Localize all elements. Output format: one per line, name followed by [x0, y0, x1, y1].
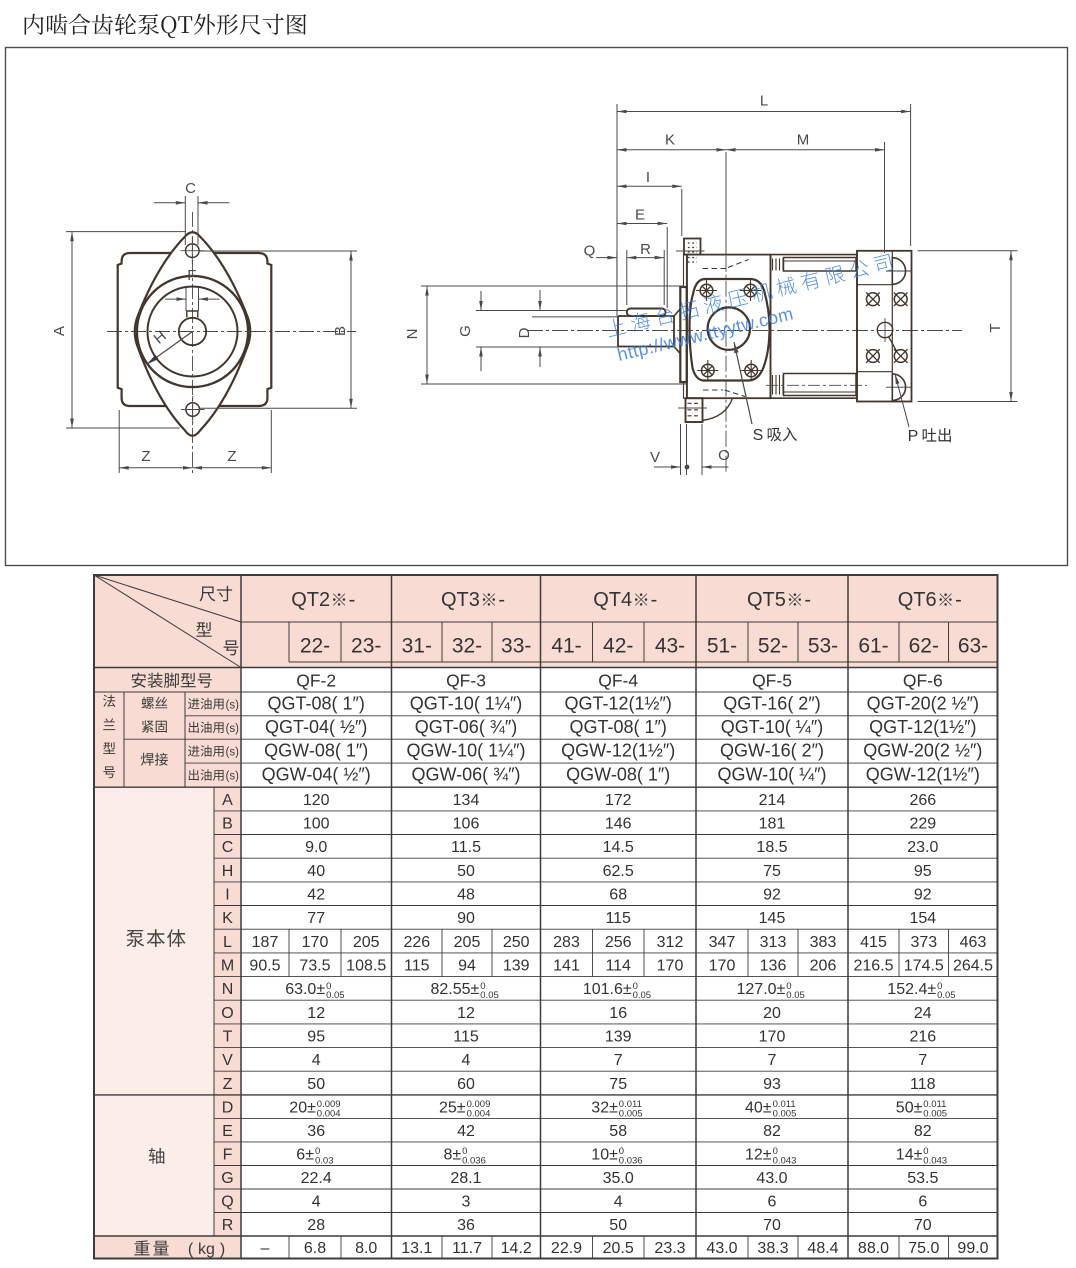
svg-text:95: 95 — [914, 863, 932, 880]
svg-text:50±: 50± — [896, 1100, 923, 1117]
svg-text:0.05: 0.05 — [633, 990, 652, 1001]
svg-text:6: 6 — [768, 1194, 777, 1211]
svg-text:62-: 62- — [909, 635, 939, 658]
svg-text:Z: Z — [223, 1076, 233, 1093]
svg-text:QGW-12(1½″): QGW-12(1½″) — [866, 765, 980, 785]
svg-text:73.5: 73.5 — [299, 958, 330, 975]
svg-text:C: C — [222, 839, 234, 856]
svg-text:0.005: 0.005 — [773, 1109, 797, 1120]
svg-text:206: 206 — [810, 958, 837, 975]
svg-text:M: M — [221, 958, 234, 975]
svg-text:115: 115 — [453, 1029, 479, 1046]
svg-text:53.5: 53.5 — [907, 1170, 938, 1187]
svg-text:QF-3: QF-3 — [446, 671, 486, 691]
svg-text:20.5: 20.5 — [603, 1240, 634, 1257]
svg-text:50: 50 — [307, 1076, 325, 1093]
svg-text:QF-6: QF-6 — [903, 671, 943, 691]
svg-text:6.8: 6.8 — [304, 1240, 326, 1257]
svg-text:170: 170 — [759, 1029, 786, 1046]
svg-text:22-: 22- — [300, 635, 330, 658]
svg-text:60: 60 — [457, 1076, 475, 1093]
svg-text:170: 170 — [302, 934, 329, 951]
svg-text:40: 40 — [307, 863, 325, 880]
svg-text:QGT-08( 1″): QGT-08( 1″) — [569, 717, 666, 737]
svg-text:62.5: 62.5 — [603, 863, 634, 880]
svg-text:36: 36 — [307, 1123, 325, 1140]
svg-text:383: 383 — [810, 934, 837, 951]
svg-text:QGW-06( ¾″): QGW-06( ¾″) — [411, 765, 520, 785]
svg-text:L: L — [223, 934, 232, 951]
svg-text:-: - — [804, 589, 811, 611]
svg-text:QGT-12(1½″): QGT-12(1½″) — [564, 693, 671, 713]
svg-text:Z: Z — [227, 448, 236, 465]
svg-text:QT3: QT3 — [441, 589, 480, 611]
svg-text:33-: 33- — [501, 635, 531, 658]
svg-text:Q: Q — [221, 1194, 233, 1211]
svg-text:75: 75 — [609, 1076, 627, 1093]
svg-text:V: V — [650, 449, 660, 466]
svg-text:23.0: 23.0 — [907, 839, 938, 856]
svg-text:-: - — [955, 589, 962, 611]
svg-text:QGW-08( 1″): QGW-08( 1″) — [566, 765, 670, 785]
svg-text:22.4: 22.4 — [301, 1170, 332, 1187]
svg-text:43.0: 43.0 — [756, 1170, 787, 1187]
svg-text:77: 77 — [307, 910, 325, 927]
svg-text:0.036: 0.036 — [462, 1156, 486, 1167]
svg-text:6±: 6± — [296, 1147, 314, 1164]
svg-text:-: - — [349, 589, 356, 611]
svg-text:A: A — [51, 326, 68, 336]
svg-text:115: 115 — [605, 910, 631, 927]
svg-text:28: 28 — [307, 1217, 325, 1234]
svg-text:QT6: QT6 — [898, 589, 937, 611]
svg-text:42: 42 — [307, 887, 325, 904]
svg-text:226: 226 — [403, 934, 430, 951]
svg-text:94: 94 — [458, 958, 476, 975]
svg-text:O: O — [221, 1005, 233, 1022]
svg-text:32±: 32± — [591, 1100, 618, 1117]
svg-text:QGT-12(1½″): QGT-12(1½″) — [869, 717, 976, 737]
svg-text:14.2: 14.2 — [501, 1240, 532, 1257]
svg-text:264.5: 264.5 — [953, 958, 993, 975]
svg-text:14.5: 14.5 — [603, 839, 634, 856]
svg-text:G: G — [221, 1170, 233, 1187]
svg-text:32-: 32- — [452, 635, 482, 658]
svg-text:QGW-16( 2″): QGW-16( 2″) — [720, 741, 824, 761]
svg-text:QGT-04( ½″): QGT-04( ½″) — [265, 717, 367, 737]
svg-text:QGW-12(1½″): QGW-12(1½″) — [561, 741, 675, 761]
svg-text:D: D — [222, 1100, 234, 1117]
svg-text:38.3: 38.3 — [757, 1240, 788, 1257]
svg-text:139: 139 — [503, 958, 530, 975]
svg-text:QGT-08( 1″): QGT-08( 1″) — [267, 693, 364, 713]
svg-text:154: 154 — [909, 910, 936, 927]
svg-text:QF-4: QF-4 — [598, 671, 638, 691]
svg-text:F: F — [187, 267, 196, 284]
svg-text:10±: 10± — [591, 1147, 618, 1164]
svg-text:88.0: 88.0 — [858, 1240, 889, 1257]
svg-text:70: 70 — [763, 1217, 781, 1234]
svg-text:63-: 63- — [958, 635, 988, 658]
svg-text:13.1: 13.1 — [401, 1240, 432, 1257]
svg-text:V: V — [222, 1052, 233, 1069]
svg-text:QGW-10( 1¼″): QGW-10( 1¼″) — [406, 741, 525, 761]
svg-text:QT2: QT2 — [291, 589, 330, 611]
svg-text:256: 256 — [605, 934, 632, 951]
svg-text:90: 90 — [457, 910, 475, 927]
svg-text:H: H — [222, 863, 234, 880]
svg-text:M: M — [797, 132, 810, 149]
svg-text:23-: 23- — [351, 635, 381, 658]
svg-text:216: 216 — [909, 1029, 936, 1046]
svg-text:(s): (s) — [226, 699, 240, 711]
svg-text:8.0: 8.0 — [355, 1240, 377, 1257]
svg-text:-: - — [498, 589, 505, 611]
svg-text:4: 4 — [614, 1194, 623, 1211]
svg-text:373: 373 — [910, 934, 937, 951]
svg-text:313: 313 — [760, 934, 787, 951]
svg-text:48.4: 48.4 — [807, 1240, 838, 1257]
svg-text:A: A — [222, 792, 233, 809]
svg-text:QGW-08( 1″): QGW-08( 1″) — [264, 741, 368, 761]
svg-text:F: F — [223, 1147, 233, 1164]
svg-text:7: 7 — [614, 1052, 623, 1069]
svg-text:0.05: 0.05 — [937, 990, 956, 1001]
svg-text:114: 114 — [605, 958, 631, 975]
svg-text:0.036: 0.036 — [619, 1156, 643, 1167]
svg-text:N: N — [404, 329, 421, 340]
svg-text:E: E — [222, 1123, 233, 1140]
svg-text:K: K — [222, 910, 233, 927]
svg-text:139: 139 — [605, 1029, 632, 1046]
svg-text:42-: 42- — [603, 635, 633, 658]
svg-text:QT4: QT4 — [593, 589, 632, 611]
svg-text:25±: 25± — [439, 1100, 466, 1117]
svg-text:4: 4 — [312, 1194, 321, 1211]
svg-text:28.1: 28.1 — [450, 1170, 481, 1187]
svg-text:0.005: 0.005 — [923, 1109, 947, 1120]
svg-text:20±: 20± — [289, 1100, 316, 1117]
svg-text:20: 20 — [763, 1005, 781, 1022]
svg-text:95: 95 — [307, 1029, 325, 1046]
svg-text:K: K — [665, 132, 675, 149]
svg-text:(s): (s) — [226, 771, 240, 783]
svg-text:0.05: 0.05 — [786, 990, 805, 1001]
svg-text:14±: 14± — [896, 1147, 923, 1164]
svg-text:T: T — [987, 323, 1004, 332]
svg-text:120: 120 — [303, 792, 330, 809]
svg-text:75.0: 75.0 — [908, 1240, 939, 1257]
svg-text:31-: 31- — [402, 635, 432, 658]
svg-text:347: 347 — [709, 934, 736, 951]
svg-text:9.0: 9.0 — [305, 839, 327, 856]
svg-text:312: 312 — [657, 934, 684, 951]
svg-text:0.05: 0.05 — [480, 990, 499, 1001]
svg-text:D: D — [516, 327, 533, 338]
svg-text:93: 93 — [763, 1076, 781, 1093]
svg-text:16: 16 — [609, 1005, 627, 1022]
svg-text:51-: 51- — [707, 635, 737, 658]
svg-text:127.0±: 127.0± — [737, 981, 786, 998]
svg-text:108.5: 108.5 — [346, 958, 386, 975]
svg-text:12: 12 — [307, 1005, 325, 1022]
svg-text:266: 266 — [909, 792, 936, 809]
svg-text:463: 463 — [960, 934, 987, 951]
svg-text:214: 214 — [759, 792, 786, 809]
svg-text:(s): (s) — [226, 747, 240, 759]
svg-text:B: B — [222, 816, 233, 833]
svg-text:92: 92 — [914, 887, 932, 904]
svg-text:82: 82 — [914, 1123, 932, 1140]
svg-text:11.7: 11.7 — [452, 1240, 482, 1257]
svg-text:42: 42 — [457, 1123, 475, 1140]
svg-text:145: 145 — [759, 910, 786, 927]
svg-text:53-: 53- — [808, 635, 838, 658]
svg-text:S: S — [753, 427, 764, 444]
svg-text:0.043: 0.043 — [773, 1156, 797, 1167]
svg-text:23.3: 23.3 — [654, 1240, 685, 1257]
svg-text:90.5: 90.5 — [249, 958, 280, 975]
svg-text:QF-5: QF-5 — [752, 671, 792, 691]
svg-text:4: 4 — [462, 1052, 471, 1069]
svg-text:70: 70 — [914, 1217, 932, 1234]
svg-text:8±: 8± — [444, 1147, 462, 1164]
svg-text:75: 75 — [763, 863, 781, 880]
svg-text:QGW-04( ½″): QGW-04( ½″) — [262, 765, 371, 785]
svg-text:QT5: QT5 — [747, 589, 786, 611]
svg-text:52-: 52- — [758, 635, 788, 658]
svg-text:R: R — [640, 241, 651, 258]
svg-text:61-: 61- — [858, 635, 888, 658]
svg-text:R: R — [222, 1217, 234, 1234]
svg-text:50: 50 — [609, 1217, 627, 1234]
svg-text:12±: 12± — [745, 1147, 772, 1164]
svg-text:82.55±: 82.55± — [431, 981, 480, 998]
svg-text:100: 100 — [303, 816, 330, 833]
svg-text:283: 283 — [553, 934, 580, 951]
svg-text:QGT-06( ¾″): QGT-06( ¾″) — [415, 717, 517, 737]
svg-text:229: 229 — [909, 816, 936, 833]
svg-text:35.0: 35.0 — [603, 1170, 634, 1187]
svg-text:40±: 40± — [745, 1100, 772, 1117]
svg-text:Q: Q — [584, 243, 596, 260]
svg-text:4: 4 — [312, 1052, 321, 1069]
svg-text:22.9: 22.9 — [551, 1240, 582, 1257]
svg-text:QGT-20(2 ½″): QGT-20(2 ½″) — [867, 693, 979, 713]
svg-text:(: ( — [188, 1241, 194, 1258]
svg-text:92: 92 — [763, 887, 781, 904]
svg-text:174.5: 174.5 — [904, 958, 944, 975]
svg-text:6: 6 — [918, 1194, 927, 1211]
svg-text:63.0±: 63.0± — [285, 981, 325, 998]
svg-text:134: 134 — [453, 792, 480, 809]
svg-text:141: 141 — [553, 958, 580, 975]
svg-text:187: 187 — [252, 934, 279, 951]
svg-text:C: C — [185, 180, 196, 197]
svg-text:0.03: 0.03 — [315, 1156, 334, 1167]
svg-text:E: E — [635, 207, 645, 224]
svg-text:I: I — [225, 887, 229, 904]
svg-text:kg: kg — [198, 1241, 215, 1258]
svg-text:0.005: 0.005 — [619, 1109, 643, 1120]
svg-text:): ) — [220, 1241, 225, 1258]
svg-text:146: 146 — [605, 816, 632, 833]
svg-text:181: 181 — [759, 816, 786, 833]
svg-text:(s): (s) — [226, 723, 240, 735]
svg-text:7: 7 — [918, 1052, 927, 1069]
svg-text:I: I — [646, 169, 650, 186]
svg-text:G: G — [457, 325, 474, 337]
svg-text:415: 415 — [860, 934, 887, 951]
svg-text:68: 68 — [609, 887, 627, 904]
svg-text:0.043: 0.043 — [923, 1156, 947, 1167]
svg-text:152.4±: 152.4± — [887, 981, 936, 998]
svg-text:41-: 41- — [551, 635, 581, 658]
svg-text:172: 172 — [605, 792, 632, 809]
svg-text:101.6±: 101.6± — [583, 981, 632, 998]
svg-text:36: 36 — [457, 1217, 475, 1234]
svg-text:48: 48 — [457, 887, 475, 904]
svg-text:0.004: 0.004 — [317, 1109, 341, 1120]
svg-text:0.004: 0.004 — [467, 1109, 491, 1120]
svg-text:QGT-10( ¼″): QGT-10( ¼″) — [721, 717, 823, 737]
svg-text:L: L — [760, 93, 768, 110]
svg-text:O: O — [718, 447, 730, 464]
svg-text:205: 205 — [353, 934, 380, 951]
svg-text:136: 136 — [760, 958, 787, 975]
svg-text:106: 106 — [453, 816, 480, 833]
svg-text:118: 118 — [910, 1076, 936, 1093]
svg-text:50: 50 — [457, 863, 475, 880]
svg-text:N: N — [222, 981, 234, 998]
svg-text:115: 115 — [404, 958, 430, 975]
svg-text:P: P — [908, 428, 919, 445]
svg-text:170: 170 — [709, 958, 736, 975]
svg-text:QF-2: QF-2 — [296, 671, 336, 691]
svg-text:-: - — [651, 589, 658, 611]
svg-text:205: 205 — [454, 934, 481, 951]
svg-text:99.0: 99.0 — [957, 1240, 988, 1257]
svg-text:T: T — [223, 1029, 233, 1046]
svg-text:–: – — [261, 1240, 270, 1257]
svg-text:QGT-16( 2″): QGT-16( 2″) — [723, 693, 820, 713]
svg-text:250: 250 — [503, 934, 530, 951]
svg-text:11.5: 11.5 — [451, 839, 481, 856]
svg-text:43.0: 43.0 — [706, 1240, 737, 1257]
svg-text:12: 12 — [457, 1005, 475, 1022]
svg-text:24: 24 — [914, 1005, 932, 1022]
svg-text:QGW-20(2 ½″): QGW-20(2 ½″) — [863, 741, 982, 761]
svg-text:58: 58 — [609, 1123, 627, 1140]
svg-text:QGT-10( 1¼″): QGT-10( 1¼″) — [410, 693, 522, 713]
svg-text:216.5: 216.5 — [853, 958, 893, 975]
svg-text:82: 82 — [763, 1123, 781, 1140]
svg-text:170: 170 — [657, 958, 684, 975]
svg-text:H: H — [150, 328, 169, 348]
svg-text:7: 7 — [768, 1052, 777, 1069]
svg-text:3: 3 — [462, 1194, 471, 1211]
svg-text:43-: 43- — [655, 635, 685, 658]
svg-text:B: B — [332, 326, 349, 336]
svg-text:QGW-10( ¼″): QGW-10( ¼″) — [717, 765, 826, 785]
svg-text:0.05: 0.05 — [326, 990, 345, 1001]
svg-text:18.5: 18.5 — [756, 839, 787, 856]
svg-text:Z: Z — [141, 448, 150, 465]
